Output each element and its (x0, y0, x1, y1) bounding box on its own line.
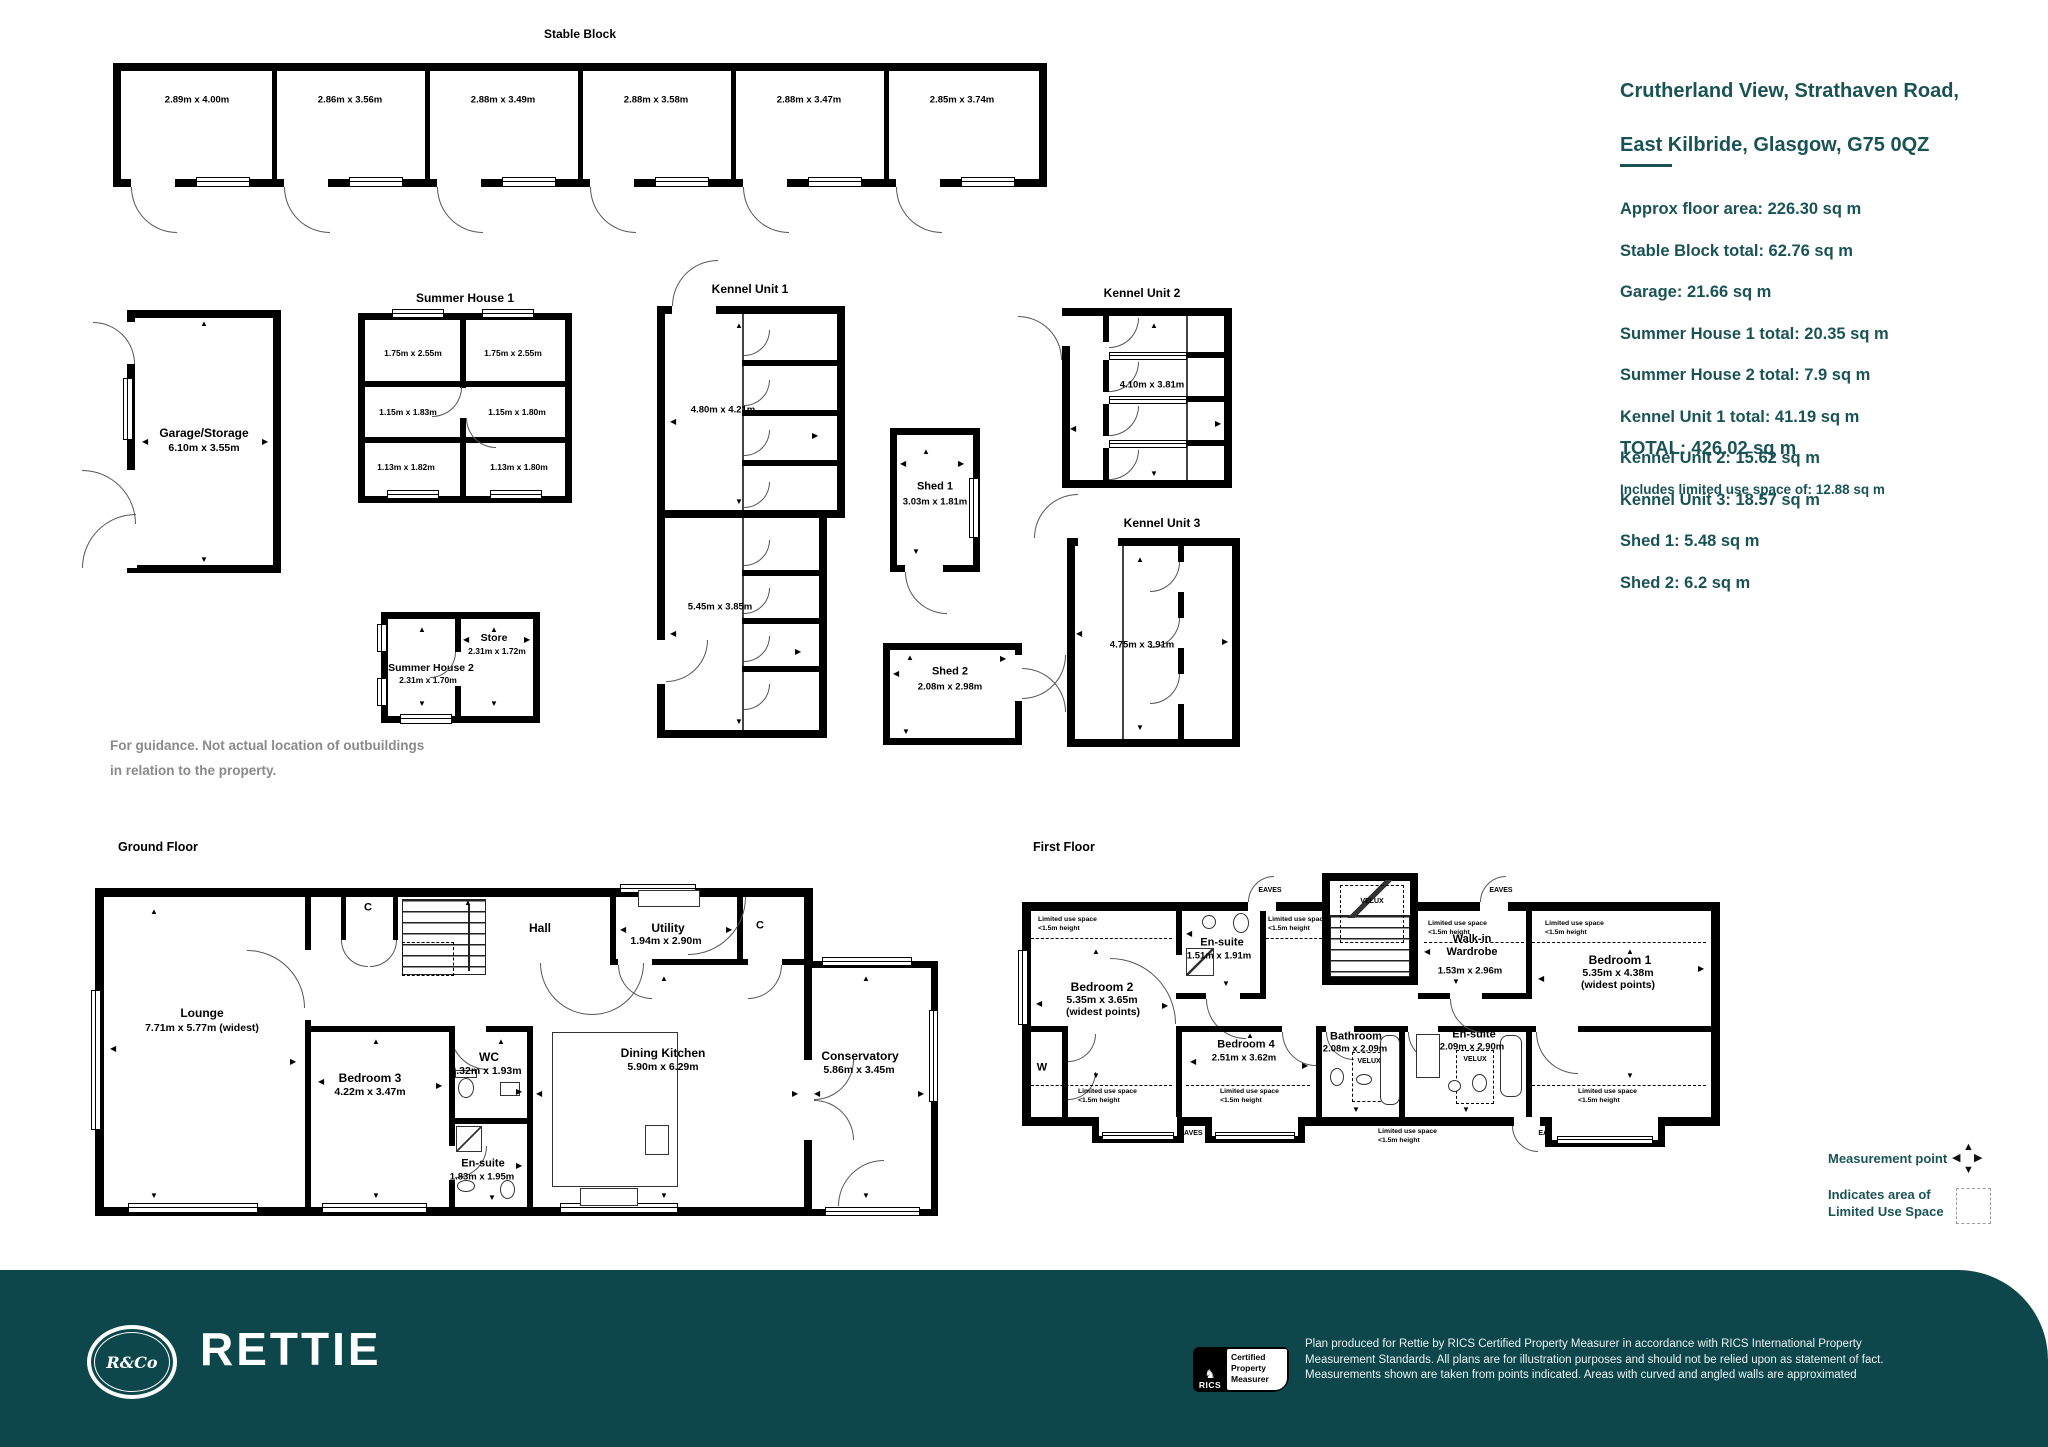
measurement-arrow-icon (620, 926, 626, 934)
wall (1178, 648, 1184, 674)
measurement-arrow-icon (862, 1192, 870, 1200)
limited-use-swatch (1956, 1188, 1991, 1224)
footer-disclaimer: Plan produced for Rettie by RICS Certifi… (1305, 1337, 1884, 1384)
legend-limited-use: Indicates area of Limited Use Space (1828, 1186, 1944, 1220)
window (349, 177, 403, 187)
wall (1316, 1026, 1322, 1117)
measurement-arrow-icon (1186, 930, 1192, 938)
wall (1176, 1026, 1711, 1032)
measurement-arrow-icon (1698, 965, 1704, 973)
measurement-arrow-icon (900, 460, 906, 468)
utility-sink-icon (638, 890, 700, 907)
kennel3-dims: 4.75m x 3.91m (1110, 639, 1174, 650)
ground-floor-title: Ground Floor (118, 840, 198, 854)
stall-dims: 2.88m x 3.58m (624, 94, 688, 105)
measurement-arrow-icon (200, 320, 208, 328)
measurement-arrow-icon (1462, 1106, 1470, 1114)
conservatory-name: Conservatory (821, 1049, 898, 1063)
limited-use-label: Limited use space <1.5m height (1078, 1088, 1137, 1106)
bathroom-name: Bathroom (1330, 1031, 1382, 1044)
measurement-arrow-icon (1092, 948, 1100, 956)
kennel-unit-2-title: Kennel Unit 2 (1104, 286, 1181, 300)
measurement-arrow-icon (1626, 948, 1634, 956)
rics-badge: ♞ RICS Certified Property Measurer (1193, 1347, 1289, 1392)
window (969, 478, 979, 538)
measurement-arrow-icon (497, 1038, 505, 1046)
measurement-arrow-icon (906, 654, 914, 662)
measurement-arrow-icon (463, 636, 469, 644)
stall-dims: 2.89m x 4.00m (165, 94, 229, 105)
measurement-arrow-icon (418, 700, 426, 708)
bedroom4-dims: 2.51m x 3.62m (1212, 1052, 1276, 1063)
window (1102, 1132, 1174, 1140)
measurement-arrow-icon (735, 718, 743, 726)
wall (884, 71, 889, 179)
utility-dims: 1.94m x 2.90m (630, 935, 701, 947)
measurement-arrow-icon (200, 556, 208, 564)
wall (1526, 1026, 1532, 1117)
window (1109, 396, 1187, 404)
window (400, 714, 452, 724)
wall (527, 1026, 533, 1207)
measurement-arrow-icon (670, 630, 676, 638)
measurement-arrow-icon (1215, 420, 1221, 428)
door-gap (1013, 655, 1022, 701)
limited-use-line (1031, 1085, 1172, 1086)
wall (393, 897, 398, 940)
sh1-room-dims: 1.75m x 2.55m (484, 348, 542, 358)
door-gap (1248, 902, 1276, 911)
measurement-arrow-icon (372, 1192, 380, 1200)
measurement-arrow-icon (150, 1192, 158, 1200)
window (961, 177, 1015, 187)
wall (1031, 1026, 1062, 1032)
window (128, 1203, 258, 1213)
window (1109, 352, 1187, 360)
garage-dims: 6.10m x 3.55m (168, 442, 239, 454)
door-arc-icon (1034, 494, 1078, 538)
door-gap (1062, 316, 1071, 346)
hob-icon (645, 1125, 669, 1155)
measurement-arrow-icon (922, 448, 930, 456)
measurement-arrow-icon (524, 636, 530, 644)
wall (1187, 352, 1224, 358)
measurement-arrow-icon (1246, 1032, 1254, 1040)
measurement-arrow-icon (1150, 470, 1158, 478)
measurement-arrow-icon (726, 926, 732, 934)
summer-house-1-title: Summer House 1 (416, 291, 514, 305)
kitchen-sink-icon (580, 1188, 638, 1206)
limited-use-label: Limited use space <1.5m height (1220, 1088, 1279, 1106)
measurement-arrow-icon (660, 1192, 668, 1200)
window (377, 624, 387, 652)
wall (1260, 902, 1266, 999)
wall (311, 1026, 533, 1032)
window (196, 177, 250, 187)
first-floor-title: First Floor (1033, 840, 1095, 854)
limited-use-label: Limited use space <1.5m height (1578, 1088, 1637, 1106)
sink-icon (1356, 1074, 1372, 1085)
window (1109, 440, 1187, 448)
ff-ensuite-top-dims: 1.51m x 1.91m (1187, 950, 1251, 961)
measurement-arrow-icon (1424, 948, 1430, 956)
bathroom-dims: 2.08m x 2.09m (1323, 1043, 1387, 1054)
limited-use-label: Limited use space <1.5m height (1038, 916, 1097, 934)
wall (449, 1118, 533, 1124)
area-line: Shed 2: 6.2 sq m (1620, 572, 1889, 596)
window (825, 1207, 920, 1216)
measurement-arrow-icon (488, 1194, 496, 1202)
area-line: Approx floor area: 226.30 sq m (1620, 198, 1889, 222)
total-area: TOTAL: 426.02 sq m (1620, 437, 1796, 459)
sh1-room-dims: 1.15m x 1.80m (488, 407, 546, 417)
wall (305, 897, 311, 950)
wall (1526, 902, 1532, 993)
sh1-room-dims: 1.15m x 1.83m (379, 407, 437, 417)
stall-dims: 2.85m x 3.74m (930, 94, 994, 105)
measurement-arrow-icon (1070, 425, 1076, 433)
address-line1: Crutherland View, Strathaven Road, (1620, 80, 1959, 102)
measurement-arrow-icon (318, 1078, 324, 1086)
conservatory-dims: 5.86m x 3.45m (823, 1064, 894, 1076)
measurement-arrow-icon (670, 418, 676, 426)
bedroom1-note: (widest points) (1581, 979, 1655, 991)
stable-block-title: Stable Block (544, 27, 616, 41)
toilet-icon (1233, 913, 1249, 933)
hall-name: Hall (529, 921, 551, 935)
measurement-arrow-icon (862, 975, 870, 983)
wall (1178, 592, 1184, 618)
wall (1178, 704, 1184, 739)
gf-ensuite-dims: 1.83m x 1.95m (450, 1171, 514, 1182)
limited-use-line (1532, 942, 1706, 943)
shed-2-dims: 2.08m x 2.98m (918, 681, 982, 692)
shower-icon (456, 1126, 482, 1152)
footer-band: R&Co RETTIE ♞ RICS Certified Property Me… (0, 1270, 2048, 1447)
measurement-arrow-icon (1136, 556, 1144, 564)
measurement-arrow-icon (1302, 1062, 1308, 1070)
door-gap (905, 563, 943, 572)
door-arc-icon (672, 260, 718, 306)
measurement-arrow-icon (795, 648, 801, 656)
measurement-arrow-icon (660, 975, 668, 983)
measurement-arrow-icon (1222, 980, 1230, 988)
measurement-arrow-icon (490, 626, 498, 634)
wall (1176, 1026, 1182, 1117)
bedroom3-name: Bedroom 3 (339, 1071, 402, 1085)
rics-lion-icon: ♞ (1205, 1368, 1216, 1380)
cupboard-label: C (756, 920, 764, 933)
door-arc-icon (905, 572, 947, 614)
wall (742, 360, 837, 366)
window (655, 177, 709, 187)
window (91, 990, 101, 1130)
floorplan-page: Stable Block 2.89m x 4.00m 2.86m x 3.56m… (0, 0, 2048, 1447)
bedroom2-note: (widest points) (1066, 1006, 1140, 1018)
bedroom3-dims: 4.22m x 3.47m (334, 1086, 405, 1098)
measurement-arrow-icon (536, 1090, 542, 1098)
sink-icon (1448, 1080, 1461, 1092)
measurement-arrow-icon (516, 1162, 522, 1170)
wall (742, 570, 819, 576)
wall (731, 71, 736, 179)
window (387, 490, 439, 499)
window (392, 309, 444, 318)
limited-use-note: Includes limited use space of: 12.88 sq … (1620, 482, 1885, 497)
measurement-arrow-icon (735, 322, 743, 330)
wall (425, 71, 430, 179)
velux-label: VELUX (1357, 1058, 1380, 1066)
limited-use-line (1186, 1085, 1310, 1086)
velux-label: VELUX (1360, 898, 1383, 906)
wall (742, 460, 837, 466)
toilet-icon (458, 1078, 474, 1098)
bedroom4-name: Bedroom 4 (1217, 1039, 1274, 1052)
wall (1176, 902, 1182, 955)
bedroom1-name: Bedroom 1 (1589, 953, 1652, 967)
kennel1-upper-dims: 4.80m x 4.21m (691, 404, 755, 415)
measurement-arrow-icon (1076, 630, 1082, 638)
shed-2-name: Shed 2 (932, 666, 968, 679)
measurement-arrow-icon (1352, 1106, 1360, 1114)
wall (1187, 396, 1224, 402)
cupboard-label: C (364, 902, 372, 915)
window (808, 177, 862, 187)
area-line: Kennel Unit 1 total: 41.19 sq m (1620, 406, 1889, 430)
dining-kitchen-dims: 5.90m x 6.29m (627, 1061, 698, 1073)
dining-kitchen-name: Dining Kitchen (621, 1046, 706, 1060)
property-address: Crutherland View, Strathaven Road, East … (1620, 78, 1959, 159)
ff-ensuite-right-dims: 2.09m x 2.90m (1440, 1041, 1504, 1052)
stall-dims: 2.88m x 3.49m (471, 94, 535, 105)
bedroom2-dims: 5.35m x 3.65m (1066, 994, 1137, 1006)
window (502, 177, 556, 187)
divider (1620, 164, 1672, 167)
kennel2-dims: 4.10m x 3.81m (1120, 379, 1184, 390)
toilet-icon (1330, 1068, 1344, 1086)
measurement-arrow-icon (902, 728, 910, 736)
bedroom2-name: Bedroom 2 (1071, 980, 1134, 994)
measurement-arrow-icon (792, 1090, 798, 1098)
measurement-arrow-icon (418, 626, 426, 634)
limited-use-label: Limited use space <1.5m height (1545, 920, 1604, 938)
measurement-arrow-icon (1626, 1072, 1634, 1080)
window (1215, 1132, 1295, 1140)
area-summary-list: Approx floor area: 226.30 sq m Stable Bl… (1620, 180, 1889, 613)
toilet-icon (500, 1180, 515, 1199)
area-line: Summer House 2 total: 7.9 sq m (1620, 364, 1889, 388)
sh1-room-dims: 1.75m x 2.55m (384, 348, 442, 358)
door-gap (804, 1060, 814, 1140)
measurement-arrow-icon (912, 548, 920, 556)
limited-use-line (1031, 938, 1172, 939)
measurement-arrow-icon (372, 1038, 380, 1046)
door-arc-icon (1480, 876, 1506, 902)
limited-use-label: Limited use space <1.5m height (1378, 1128, 1437, 1146)
measurement-arrow-icon (142, 438, 148, 446)
area-line: Summer House 1 total: 20.35 sq m (1620, 323, 1889, 347)
door-arc-icon (284, 187, 330, 233)
door-arc-icon (1018, 316, 1062, 360)
stair-direction-line (468, 905, 470, 971)
wall (1187, 440, 1224, 446)
door-arc-icon (896, 187, 942, 233)
measurement-arrow-icon (262, 438, 268, 446)
window (822, 957, 912, 966)
store-dims: 2.31m x 1.72m (468, 646, 526, 656)
wall (341, 897, 346, 940)
window (1018, 950, 1028, 1025)
address-line2: East Kilbride, Glasgow, G75 0QZ (1620, 134, 1929, 156)
window (1557, 1136, 1653, 1144)
stall-dims: 2.88m x 3.47m (777, 94, 841, 105)
kennel-unit-3-title: Kennel Unit 3 (1124, 516, 1201, 530)
measurement-arrow-icon (436, 1082, 442, 1090)
rettie-logo: R&Co (87, 1325, 177, 1399)
limited-use-line (1266, 938, 1322, 939)
measurement-arrow-icon (735, 498, 743, 506)
summer-house-2-dims: 2.31m x 1.70m (399, 675, 457, 685)
door-arc-icon (590, 187, 636, 233)
measurement-arrow-icon (1136, 724, 1144, 732)
measurement-arrow-icon (490, 700, 498, 708)
door-arc-icon (131, 187, 177, 233)
shower-icon (1416, 1034, 1440, 1078)
wall (610, 897, 616, 965)
door-gap (657, 640, 666, 684)
measurement-arrow-icon (516, 1088, 522, 1096)
shed-1-dims: 3.03m x 1.81m (903, 496, 967, 507)
logo-monogram: R&Co (91, 1329, 173, 1395)
measurement-arrow-icon (1000, 655, 1006, 663)
measurement-arrow-icon (893, 670, 899, 678)
utility-name: Utility (651, 921, 684, 935)
wc-dims: 2.32m x 1.93m (450, 1065, 521, 1077)
wardrobe-name: Walk-in Wardrobe (1447, 933, 1498, 959)
measurement-arrow-icon (1538, 975, 1544, 983)
limited-use-label: Limited use space <1.5m height (1268, 916, 1327, 934)
door-arc-icon (1248, 876, 1274, 902)
wardrobe-dims: 1.53m x 2.96m (1438, 965, 1502, 976)
wall (742, 410, 837, 416)
measurement-arrow-icon (1190, 1058, 1196, 1066)
lounge-name: Lounge (180, 1006, 223, 1020)
window (482, 309, 534, 318)
window (490, 490, 542, 499)
door-gap (1078, 538, 1118, 547)
rics-mark: ♞ RICS (1195, 1349, 1225, 1390)
bedroom1-dims: 5.35m x 4.38m (1582, 967, 1653, 979)
area-line: Shed 1: 5.48 sq m (1620, 530, 1889, 554)
measurement-arrow-icon (812, 432, 818, 440)
wall (305, 1020, 311, 1207)
wall (578, 71, 583, 179)
measurement-arrow-icon (1452, 978, 1460, 986)
measurement-arrow-icon (958, 460, 964, 468)
door-gap (672, 306, 716, 315)
measurement-arrow-icon (110, 1045, 116, 1053)
window (123, 378, 133, 440)
wall (272, 71, 277, 179)
rics-text: RICS (1199, 1380, 1221, 1390)
kennel1-lower-dims: 5.45m x 3.85m (688, 601, 752, 612)
velux-dashed-box (1340, 885, 1404, 943)
door-gap (1514, 1117, 1540, 1126)
wall (742, 666, 819, 672)
measurement-arrow-icon (150, 908, 158, 916)
rettie-wordmark: RETTIE (200, 1322, 382, 1376)
wc-name: WC (479, 1050, 499, 1064)
measurement-arrow-icon (1150, 322, 1158, 330)
window (377, 678, 387, 706)
stair-up-arrow-icon (464, 899, 472, 907)
gf-ensuite-name: En-suite (461, 1158, 504, 1171)
guidance-note: For guidance. Not actual location of out… (110, 733, 424, 783)
wall (1178, 546, 1184, 562)
door-gap (1480, 902, 1508, 911)
sh1-room-dims: 1.13m x 1.82m (377, 462, 435, 472)
window (322, 1203, 427, 1213)
measurement-arrow-icon (814, 1090, 820, 1098)
measurement-point-icon: ▲ ▼ ◀ ▶ (1952, 1142, 1986, 1176)
measurement-arrow-icon (1092, 1072, 1100, 1080)
kennel-unit-1-title: Kennel Unit 1 (712, 282, 789, 296)
shed-1-name: Shed 1 (917, 481, 953, 494)
measurement-arrow-icon (1222, 638, 1228, 646)
area-line: Garage: 21.66 sq m (1620, 281, 1889, 305)
limited-use-line (1532, 1085, 1706, 1086)
stall-dims: 2.86m x 3.56m (318, 94, 382, 105)
window (929, 1010, 938, 1102)
wall (742, 618, 819, 624)
measurement-arrow-icon (290, 1058, 296, 1066)
w-closet-label: W (1037, 1062, 1047, 1075)
door-arc-icon (743, 187, 789, 233)
velux-label: VELUX (1463, 1056, 1486, 1064)
ff-ensuite-top-name: En-suite (1200, 937, 1243, 950)
toilet-icon (1472, 1074, 1487, 1092)
door-arc-icon (437, 187, 483, 233)
garage-name: Garage/Storage (159, 426, 248, 440)
door-arc-icon (1512, 1126, 1538, 1152)
measurement-arrow-icon (1036, 1000, 1042, 1008)
rics-badge-text: Certified Property Measurer (1227, 1349, 1287, 1390)
sh1-room-dims: 1.13m x 1.80m (490, 462, 548, 472)
measurement-arrow-icon (1162, 1002, 1168, 1010)
legend-measurement-point: Measurement point (1828, 1151, 1947, 1166)
ff-ensuite-right-name: En-suite (1452, 1029, 1495, 1042)
understair-dashed (402, 942, 454, 976)
lounge-dims: 7.71m x 5.77m (widest) (145, 1022, 259, 1034)
measurement-arrow-icon (918, 1090, 924, 1098)
sink-icon (1202, 915, 1216, 929)
area-line: Stable Block total: 62.76 sq m (1620, 240, 1889, 264)
